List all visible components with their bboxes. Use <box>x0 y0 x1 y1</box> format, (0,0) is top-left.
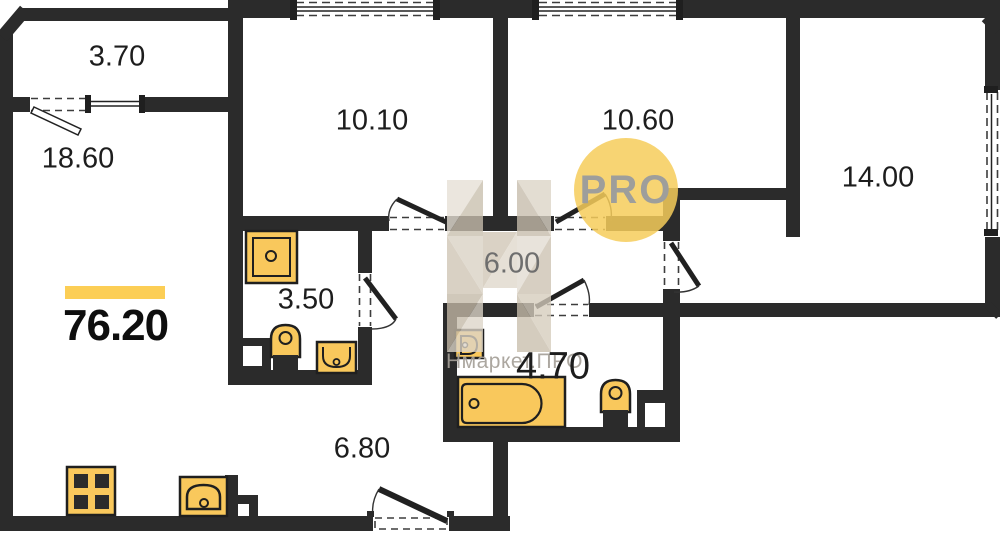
room-area-label-bedroom-top-center: 10.10 <box>336 105 409 138</box>
room-area-label-hallway: 6.00 <box>484 248 540 281</box>
room-area-label-bathroom-large: 4.70 <box>516 346 590 389</box>
total-area-value: 76.20 <box>63 301 168 351</box>
room-area-label-balcony: 3.70 <box>89 41 145 74</box>
room-area-label-bathroom-small: 3.50 <box>278 284 334 317</box>
floor-plan: PRO Нмаркет.ПРО 3.70 18.60 10.10 10.60 1… <box>0 0 1000 536</box>
total-area-accent-bar <box>65 286 165 299</box>
room-area-label-bedroom-top-right: 10.60 <box>602 105 675 138</box>
watermark-pro-badge: PRO <box>574 138 678 242</box>
room-area-label-bedroom-right: 14.00 <box>842 162 915 195</box>
room-area-label-living: 18.60 <box>42 143 115 176</box>
room-area-label-corridor: 6.80 <box>334 433 390 466</box>
watermark-pro-text: PRO <box>580 168 673 213</box>
